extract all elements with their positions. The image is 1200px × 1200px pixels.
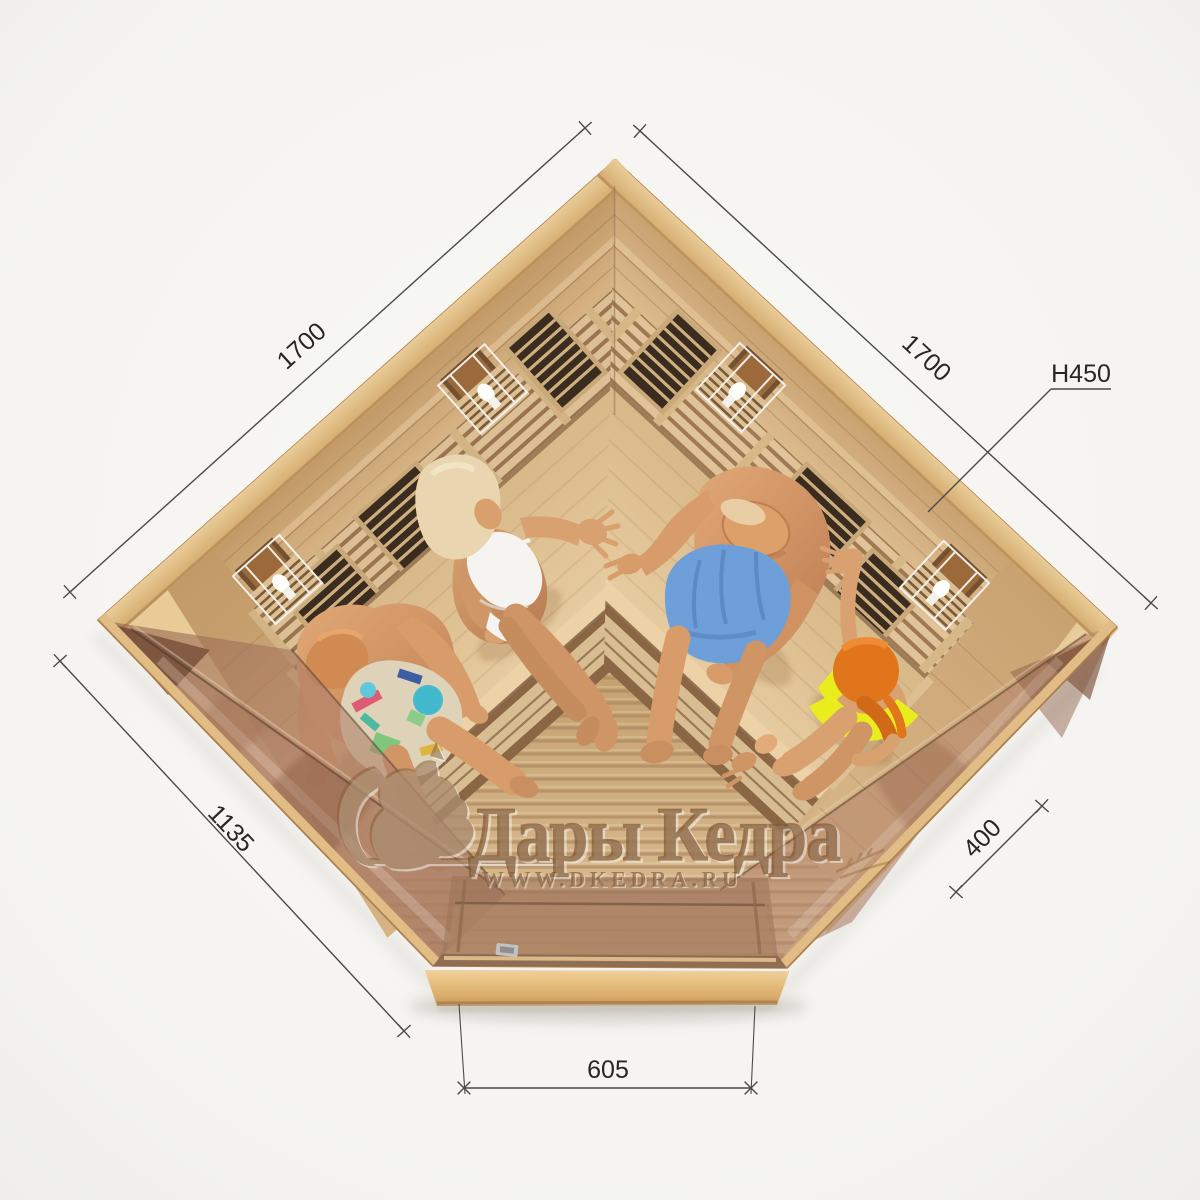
svg-text:H450: H450: [1051, 360, 1111, 388]
svg-text:WWW.DKEDRA.RU: WWW.DKEDRA.RU: [482, 867, 743, 892]
svg-text:605: 605: [587, 1056, 629, 1084]
svg-text:Дары Кедра: Дары Кедра: [468, 791, 840, 877]
